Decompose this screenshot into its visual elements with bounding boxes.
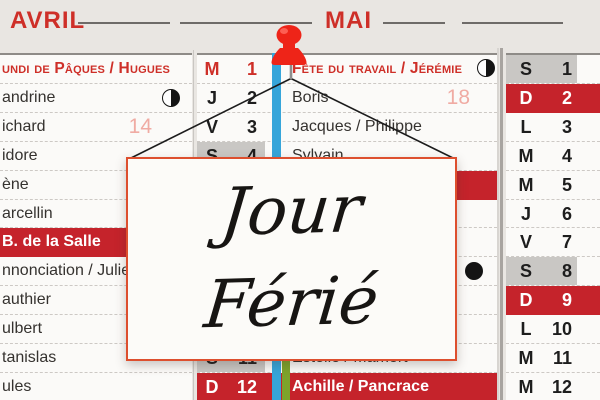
calendar-photo: AVRIL MAI undi de Pâques / Hugues andrin… bbox=[0, 0, 600, 400]
day-number: 2 bbox=[532, 84, 572, 113]
day-number: 9 bbox=[532, 286, 572, 315]
sign-text-line2: Férié bbox=[123, 253, 460, 354]
calendar-row: undi de Pâques / Hugues bbox=[0, 55, 192, 84]
calendar-row-holiday: D 12 Achille / Pancrace bbox=[197, 373, 497, 400]
day-number: 8 bbox=[532, 257, 572, 286]
calendar-row: V 7 bbox=[506, 228, 600, 257]
day-number: 11 bbox=[532, 344, 572, 373]
day-name: tanislas bbox=[2, 344, 56, 373]
header-rule bbox=[180, 22, 312, 24]
month-label-may: MAI bbox=[325, 7, 372, 35]
day-name: authier bbox=[2, 286, 51, 315]
week-number: 18 bbox=[447, 84, 470, 113]
calendar-row: M 12 bbox=[506, 373, 600, 400]
pin-neck bbox=[283, 40, 295, 50]
day-name: nnonciation / Julie bbox=[2, 257, 130, 286]
day-name: Jacques / Philippe bbox=[292, 113, 422, 142]
calendar-row: S 8 bbox=[506, 257, 600, 286]
calendar-row-holiday: D 2 bbox=[506, 84, 600, 113]
calendar-column-june: S 1 D 2 L 3 M 4 M 5 J 6 V 7 S 8 bbox=[506, 53, 600, 400]
day-number: 12 bbox=[532, 373, 572, 400]
page-edge-shadow bbox=[500, 48, 503, 400]
day-number: 5 bbox=[532, 171, 572, 200]
week-number: 14 bbox=[129, 113, 152, 142]
day-number: 7 bbox=[532, 228, 572, 257]
day-number: 1 bbox=[532, 55, 572, 84]
calendar-row: J 2 Boris 18 bbox=[197, 84, 497, 113]
holiday-name: undi de Pâques / Hugues bbox=[2, 55, 170, 84]
month-label-april: AVRIL bbox=[10, 7, 85, 35]
holiday-name: B. de la Salle bbox=[2, 228, 101, 257]
new-moon-icon bbox=[465, 262, 483, 280]
sign-text-line1: Jour bbox=[123, 161, 460, 262]
calendar-row: V 3 Jacques / Philippe bbox=[197, 113, 497, 142]
day-number: 2 bbox=[219, 84, 257, 113]
header-rule bbox=[383, 22, 445, 24]
pin-head bbox=[277, 25, 302, 45]
day-name: ulbert bbox=[2, 315, 42, 344]
calendar-row: andrine bbox=[0, 84, 192, 113]
calendar-row: ichard 14 bbox=[0, 113, 192, 142]
calendar-row: S 1 bbox=[506, 55, 600, 84]
day-name: Boris bbox=[292, 84, 328, 113]
day-number: 4 bbox=[532, 142, 572, 171]
day-number: 3 bbox=[219, 113, 257, 142]
calendar-row-holiday: M 1 Fête du travail / Jérémie bbox=[197, 55, 497, 84]
header-rule bbox=[462, 22, 563, 24]
day-name: ules bbox=[2, 373, 31, 400]
calendar-row: L 3 bbox=[506, 113, 600, 142]
header-rule bbox=[78, 22, 170, 24]
day-name: ichard bbox=[2, 113, 46, 142]
calendar-row: J 6 bbox=[506, 200, 600, 229]
holiday-sign: Jour Férié bbox=[126, 157, 457, 361]
day-number: 6 bbox=[532, 200, 572, 229]
calendar-row-holiday: D 9 bbox=[506, 286, 600, 315]
day-number: 10 bbox=[532, 315, 572, 344]
calendar-row: M 11 bbox=[506, 344, 600, 373]
last-quarter-moon-icon bbox=[162, 89, 180, 107]
calendar-row: M 4 bbox=[506, 142, 600, 171]
day-name: arcellin bbox=[2, 200, 53, 229]
holiday-name: Fête du travail / Jérémie bbox=[292, 55, 462, 84]
calendar-row: ules bbox=[0, 373, 192, 400]
day-number: 12 bbox=[219, 373, 257, 400]
day-name: andrine bbox=[2, 84, 55, 113]
holiday-name: Achille / Pancrace bbox=[292, 373, 429, 400]
day-number: 3 bbox=[532, 113, 572, 142]
last-quarter-moon-icon bbox=[477, 59, 495, 77]
day-name: ène bbox=[2, 171, 29, 200]
day-number: 1 bbox=[219, 55, 257, 84]
calendar-row: M 5 bbox=[506, 171, 600, 200]
pin-highlight bbox=[280, 28, 288, 34]
calendar-row: L 10 bbox=[506, 315, 600, 344]
day-name: idore bbox=[2, 142, 38, 171]
